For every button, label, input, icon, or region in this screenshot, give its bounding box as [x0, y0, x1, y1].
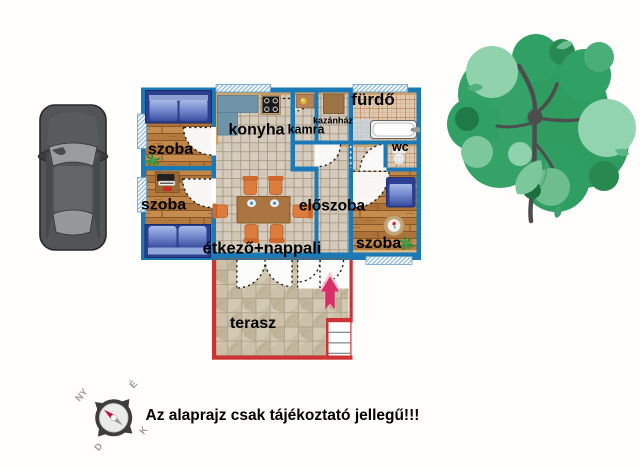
svg-text:szoba: szoba [356, 235, 401, 252]
svg-text:konyha: konyha [228, 122, 284, 139]
svg-text:kazánház: kazánház [313, 115, 354, 125]
svg-text:szoba: szoba [141, 197, 186, 214]
svg-text:szoba: szoba [148, 141, 193, 158]
svg-text:terasz: terasz [230, 315, 276, 332]
svg-text:előszoba: előszoba [299, 198, 366, 215]
svg-text:fürdő: fürdő [351, 90, 394, 109]
svg-text:étkező+nappali: étkező+nappali [203, 240, 322, 258]
svg-text:Az alaprajz csak tájékoztató j: Az alaprajz csak tájékoztató jellegű!!! [146, 407, 420, 424]
svg-text:wc: wc [391, 140, 409, 154]
